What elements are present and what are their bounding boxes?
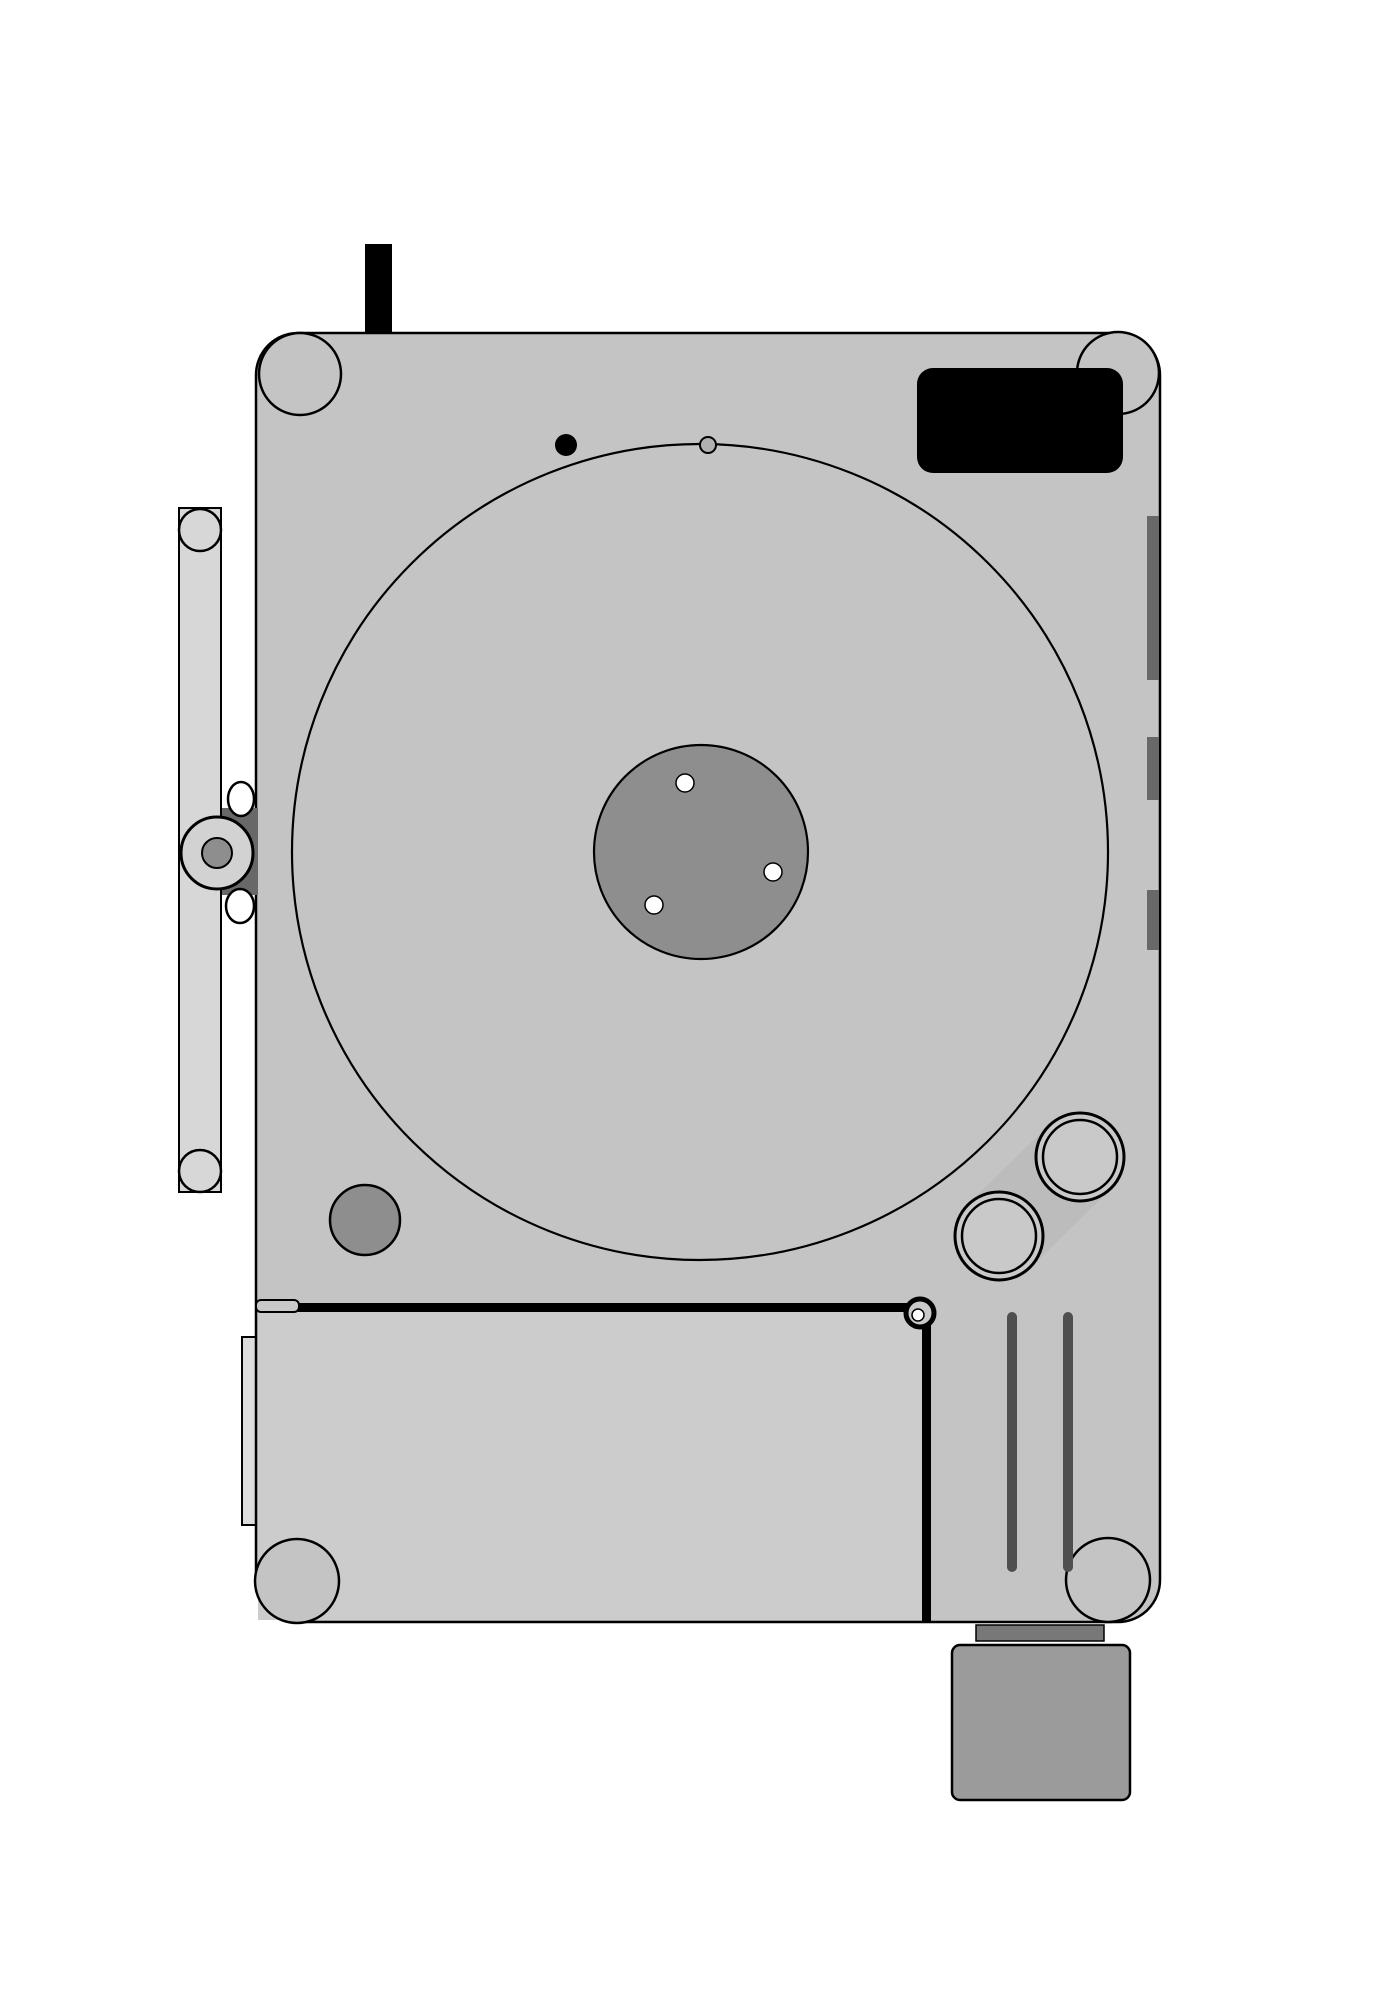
power-dot	[555, 434, 577, 456]
hinge-knob-top	[179, 509, 221, 551]
corner-post-bottom-right	[1066, 1538, 1150, 1622]
speed-knob	[330, 1185, 400, 1255]
hub-hole-1	[676, 774, 694, 792]
hub-hole-3	[645, 896, 663, 914]
corner-post-top-left	[259, 333, 341, 415]
tonearm-counterweight	[256, 1300, 299, 1312]
hinge-knob-bottom	[179, 1150, 221, 1192]
belt-strip-right	[1063, 1312, 1073, 1572]
edge-mark-2	[1147, 737, 1159, 800]
belt-strip-left	[1007, 1312, 1017, 1572]
motor-block	[952, 1645, 1130, 1800]
tonearm-pivot-hole	[912, 1309, 924, 1321]
hub-hole-2	[764, 863, 782, 881]
tonearm-tube	[298, 1303, 920, 1312]
rear-tab	[365, 244, 392, 333]
edge-mark-1	[1147, 516, 1159, 680]
pilot-dot	[700, 437, 716, 453]
lower-left-board	[258, 1312, 922, 1620]
pivot-roller-top	[228, 782, 254, 816]
corner-post-bottom-left	[255, 1539, 339, 1623]
platter-hub	[594, 745, 808, 959]
board-divider-bar	[922, 1313, 931, 1622]
control-pad	[917, 368, 1123, 473]
technical-drawing-page	[0, 0, 1400, 2004]
turntable-plan-drawing	[0, 0, 1400, 2004]
arm-bearing-upper-outer	[1036, 1113, 1124, 1201]
lid-pivot-inner	[202, 838, 232, 868]
edge-mark-3	[1147, 890, 1159, 950]
arm-bearing-lower-outer	[955, 1192, 1043, 1280]
motor-collar	[976, 1625, 1104, 1641]
pivot-roller-bottom	[226, 889, 254, 923]
